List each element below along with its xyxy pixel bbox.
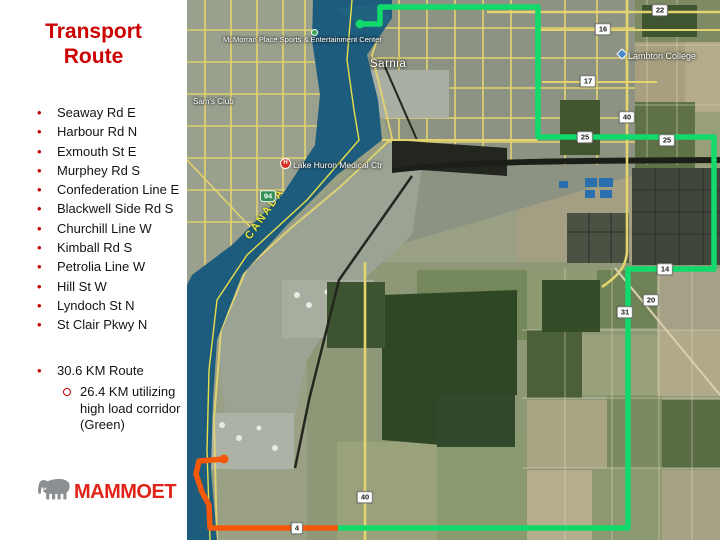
- mammoet-wordmark: MAMMOET: [74, 481, 176, 504]
- route-shield-17[interactable]: 17: [580, 75, 596, 87]
- route-shield-25-west[interactable]: 25: [577, 131, 593, 143]
- page-title-line1: Transport: [0, 20, 187, 45]
- route-step: Lyndoch St N: [57, 296, 183, 315]
- route-step: Seaway Rd E: [57, 103, 183, 122]
- route-shield-40-north[interactable]: 40: [619, 111, 635, 123]
- mammoth-icon: [36, 477, 72, 508]
- route-shield-40-south[interactable]: 40: [357, 491, 373, 503]
- route-shield-25-east[interactable]: 25: [659, 134, 675, 146]
- satellite-map[interactable]: McMorran Place Sports & Entertainment Ce…: [187, 0, 720, 540]
- route-shield-4[interactable]: 4: [291, 522, 303, 534]
- route-length-summary: 30.6 KM Route: [57, 361, 144, 380]
- presentation-slide: Transport Route Seaway Rd E Harbour Rd N…: [0, 0, 720, 540]
- map-imagery: [187, 0, 720, 540]
- page-title: Transport Route: [0, 20, 187, 70]
- city-label: Sarnia: [370, 58, 406, 70]
- route-step: Kimball Rd S: [57, 238, 183, 257]
- route-step: St Clair Pkwy N: [57, 315, 183, 334]
- route-shield-31[interactable]: 31: [617, 306, 633, 318]
- college-label: Lambton College: [628, 51, 696, 61]
- route-step-list: Seaway Rd E Harbour Rd N Exmouth St E Mu…: [0, 103, 187, 335]
- hospital-pin[interactable]: H: [280, 158, 291, 169]
- route-step: Churchill Line W: [57, 219, 183, 238]
- route-length-detail: 26.4 KM utilizing high load corridor (Gr…: [80, 384, 186, 434]
- route-step: Blackwell Side Rd S: [57, 199, 183, 218]
- route-shield-16[interactable]: 16: [595, 23, 611, 35]
- route-step: Confederation Line E: [57, 180, 183, 199]
- route-step: Exmouth St E: [57, 142, 183, 161]
- entertainment-center-label: McMorran Place Sports & Entertainment Ce…: [223, 35, 382, 44]
- hospital-label: Lake Huron Medical Ctr: [293, 160, 382, 170]
- route-step: Harbour Rd N: [57, 122, 183, 141]
- sams-club-label: Sam's Club: [193, 97, 234, 106]
- route-shield-22[interactable]: 22: [652, 4, 668, 16]
- route-step: Petrolia Line W: [57, 257, 183, 276]
- entertainment-center-pin[interactable]: [311, 29, 318, 36]
- route-step: Murphey Rd S: [57, 161, 183, 180]
- route-shield-14[interactable]: 14: [657, 263, 673, 275]
- interstate-shield-94[interactable]: 94: [260, 190, 276, 202]
- route-step: Hill St W: [57, 277, 183, 296]
- sidebar: Transport Route Seaway Rd E Harbour Rd N…: [0, 0, 187, 540]
- page-title-line2: Route: [0, 45, 187, 70]
- route-shield-20[interactable]: 20: [643, 294, 659, 306]
- mammoet-logo: MAMMOET: [36, 477, 176, 508]
